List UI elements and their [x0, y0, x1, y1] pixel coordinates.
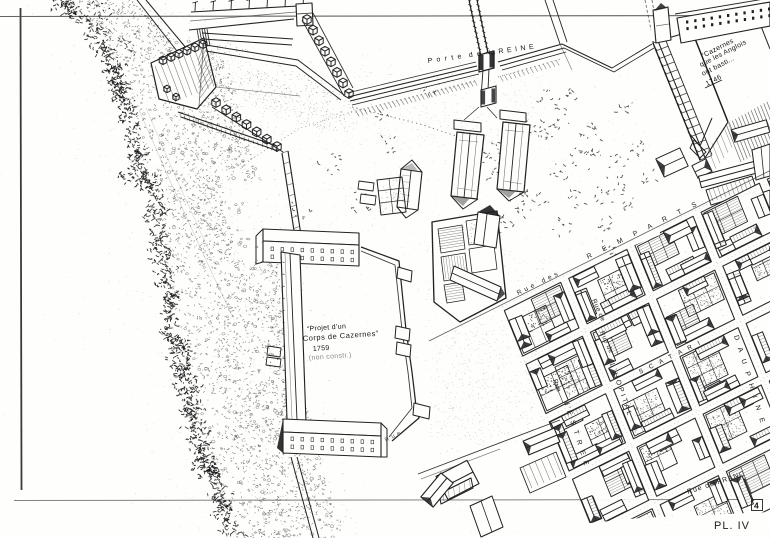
- svg-text:PL. IV: PL. IV: [714, 520, 750, 532]
- svg-text:1759: 1759: [313, 345, 330, 353]
- svg-text:4: 4: [754, 501, 759, 511]
